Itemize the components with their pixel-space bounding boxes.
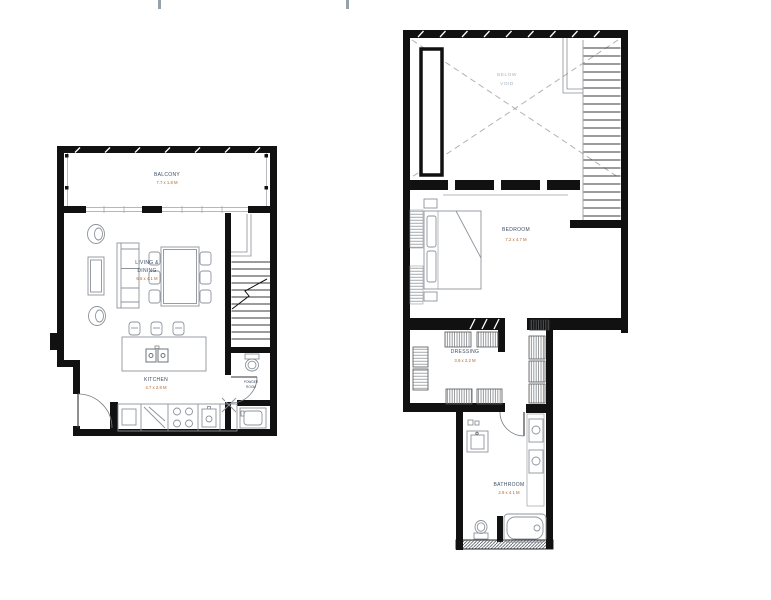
- staircase-lower: [231, 214, 270, 339]
- dining-table: [161, 247, 199, 306]
- void-label-2: VOID: [500, 81, 514, 87]
- living-dining-label-1: LIVING &: [135, 260, 159, 266]
- void-label-1: BELOW: [497, 72, 517, 78]
- basin: [532, 457, 540, 465]
- kitchen-counter: [118, 398, 237, 431]
- pillow: [427, 251, 436, 282]
- nightstand: [424, 199, 437, 208]
- bed: [424, 211, 481, 289]
- wardrobe: [413, 369, 428, 390]
- kitchen-island: [122, 337, 206, 371]
- dressing-room: DRESSING 3.9 x 2.2 M: [413, 320, 549, 404]
- washbasin: [467, 420, 488, 452]
- living-dining-room: LIVING & DINING 6.6 x 4.1 M: [88, 225, 212, 326]
- kitchen: KITCHEN 4.7 x 2.8 M: [78, 322, 237, 431]
- upper-level-plan: BELOW VOID: [403, 30, 628, 550]
- balcony: BALCONY 7.7 x 1.8 M: [64, 153, 270, 213]
- staircase-upper: [563, 38, 621, 220]
- wardrobe: [529, 361, 545, 382]
- tub-drain: [534, 525, 540, 531]
- kitchen-dims: 4.7 x 2.8 M: [145, 385, 167, 390]
- page-tick-right: [346, 0, 349, 9]
- powder-label-1: POWDER: [244, 380, 259, 384]
- stair-treads: [232, 262, 271, 339]
- toilet: [245, 354, 259, 371]
- balcony-dims: 7.7 x 1.8 M: [156, 180, 178, 185]
- wardrobe: [413, 347, 428, 367]
- bedroom-label: BEDROOM: [502, 227, 530, 233]
- powder-room: POWDER ROOM: [225, 354, 266, 428]
- sliding-door-band: [64, 206, 270, 213]
- washer-closet: [530, 320, 549, 330]
- nightstand: [424, 292, 437, 301]
- living-dining-label-2: DINING: [137, 268, 156, 274]
- wardrobe: [477, 332, 498, 347]
- bathroom-window-wall: [456, 540, 553, 549]
- stair-treads: [584, 48, 621, 216]
- toilet: [474, 521, 488, 540]
- wardrobe: [477, 389, 502, 404]
- pillow: [427, 216, 436, 247]
- stove: [174, 408, 193, 427]
- bathroom-label: BATHROOM: [494, 482, 525, 488]
- page-tick-left: [158, 0, 161, 9]
- bedroom-dims: 7.2 x 4.7 M: [505, 237, 527, 242]
- console-table: [88, 257, 104, 295]
- kitchen-sink: [202, 407, 216, 428]
- vanity: [527, 414, 544, 506]
- void-area: BELOW VOID: [412, 40, 618, 177]
- floorplan-page: BALCONY 7.7 x 1.8 M: [0, 0, 771, 600]
- wardrobe: [446, 389, 472, 404]
- floorplan-drawing: BALCONY 7.7 x 1.8 M: [0, 0, 771, 600]
- basin: [532, 426, 540, 434]
- faucet: [155, 346, 159, 349]
- lounge-chair: [89, 307, 106, 326]
- wardrobe: [529, 336, 545, 359]
- wardrobe: [529, 384, 545, 403]
- appliance: [122, 409, 136, 425]
- lounge-chair: [88, 225, 105, 244]
- dressing-dims: 3.9 x 2.2 M: [454, 358, 476, 363]
- bathroom-dims: 2.9 x 4.1 M: [498, 490, 520, 495]
- washing-machine: [240, 408, 266, 428]
- bathroom: BATHROOM 2.9 x 4.1 M: [467, 412, 546, 542]
- living-dining-dims: 6.6 x 4.1 M: [136, 276, 158, 281]
- stair-break-line: [232, 279, 267, 309]
- window-blind: [410, 266, 423, 304]
- balcony-label: BALCONY: [154, 172, 180, 178]
- wardrobe: [445, 332, 471, 347]
- bedroom: BEDROOM 7.2 x 4.7 M: [410, 199, 530, 304]
- dressing-label: DRESSING: [451, 349, 480, 355]
- bathtub: [504, 514, 546, 542]
- entry-door: [78, 394, 112, 428]
- bar-stools: [129, 322, 184, 335]
- island-sink: [161, 354, 165, 358]
- shaft-closet: [421, 49, 442, 175]
- bathroom-door: [500, 412, 524, 436]
- lower-level-plan: BALCONY 7.7 x 1.8 M: [50, 146, 277, 436]
- window-blind: [410, 210, 423, 248]
- island-sink: [149, 354, 153, 358]
- powder-label-2: ROOM: [246, 385, 256, 389]
- kitchen-label: KITCHEN: [144, 377, 168, 383]
